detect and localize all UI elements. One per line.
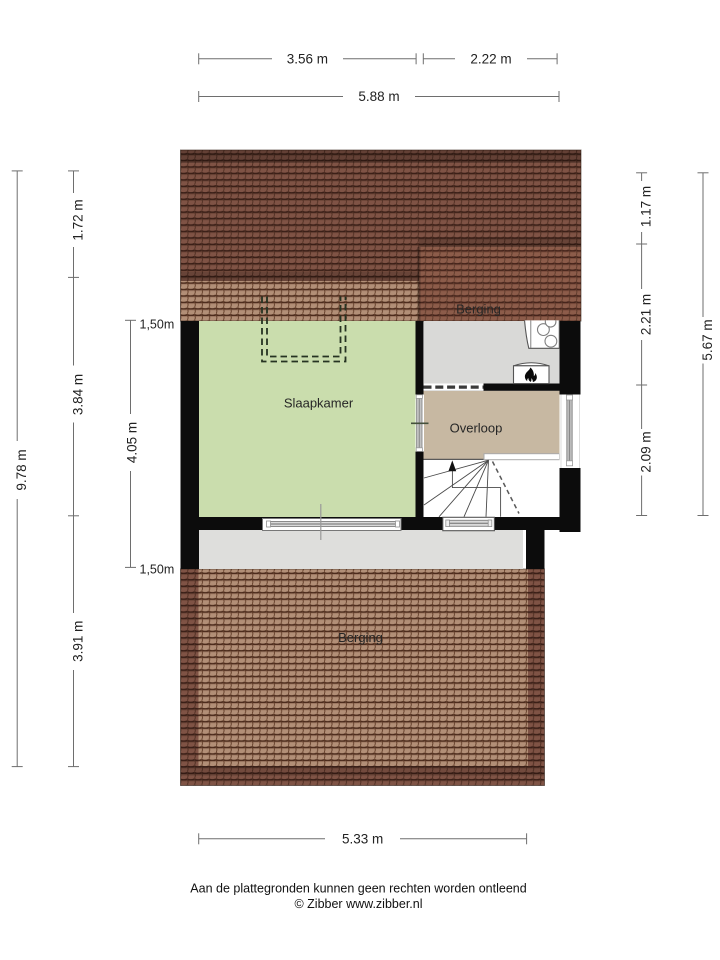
svg-text:2.22 m: 2.22 m <box>470 51 511 66</box>
svg-text:Aan de plattegronden kunnen ge: Aan de plattegronden kunnen geen rechten… <box>190 882 526 896</box>
svg-text:Slaapkamer: Slaapkamer <box>284 396 354 411</box>
svg-text:9.78 m: 9.78 m <box>14 449 29 490</box>
svg-text:1,50m: 1,50m <box>140 317 175 331</box>
svg-text:1.72 m: 1.72 m <box>70 199 85 240</box>
svg-text:Berging: Berging <box>456 302 501 317</box>
svg-text:5.33 m: 5.33 m <box>342 831 383 846</box>
svg-text:3.84 m: 3.84 m <box>70 374 85 415</box>
svg-text:4.05 m: 4.05 m <box>125 422 140 463</box>
svg-text:2.09 m: 2.09 m <box>638 431 653 472</box>
svg-text:1,50m: 1,50m <box>140 562 175 576</box>
svg-text:2.21 m: 2.21 m <box>638 294 653 335</box>
svg-text:5.88 m: 5.88 m <box>358 89 399 104</box>
svg-text:3.56 m: 3.56 m <box>287 51 328 66</box>
svg-text:Overloop: Overloop <box>450 421 503 436</box>
svg-text:Berging: Berging <box>338 630 383 645</box>
svg-text:© Zibber www.zibber.nl: © Zibber www.zibber.nl <box>294 897 422 911</box>
svg-text:3.91 m: 3.91 m <box>70 621 85 662</box>
svg-text:1.17 m: 1.17 m <box>638 186 653 227</box>
svg-text:5.67 m: 5.67 m <box>700 319 715 360</box>
